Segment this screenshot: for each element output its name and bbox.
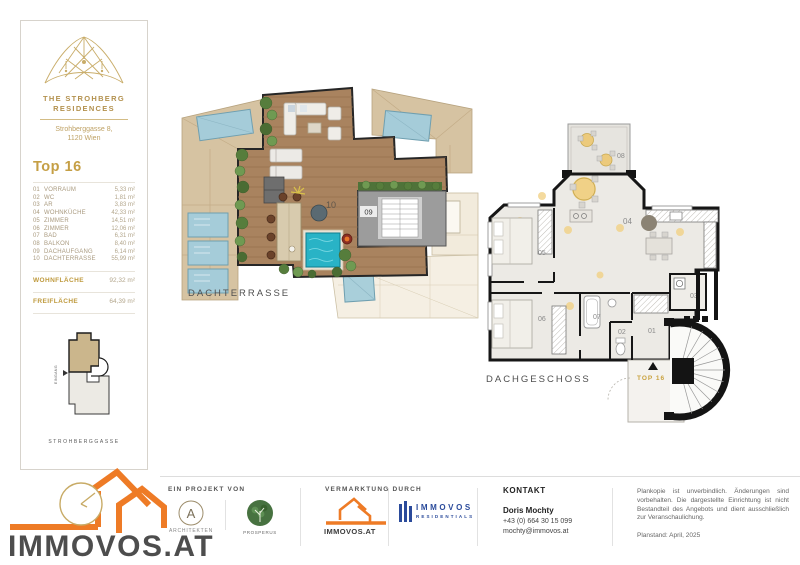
brand-divider: [40, 119, 128, 120]
fire-bowl: [342, 234, 352, 244]
disclaimer-block: Plankopie ist unverbindlich. Änderungen …: [637, 488, 789, 541]
plan-date: Planstand: April, 2025: [637, 532, 789, 541]
room-row: 10DACHTERRASSE55,99 m²: [33, 256, 135, 264]
floorplan-sheet: THE STROHBERG RESIDENCES Strohberggasse …: [0, 0, 800, 565]
room-row: 06ZIMMER12,06 m²: [33, 226, 135, 234]
room-number-09: 09: [364, 208, 372, 217]
footer-divider: [160, 476, 800, 477]
contact-label: KONTAKT: [503, 486, 572, 495]
marketing-label: VERMARKTUNG DURCH: [325, 486, 422, 493]
site-plan-map: EINGANG: [47, 326, 121, 426]
room-row: 05ZIMMER14,51 m²: [33, 218, 135, 226]
contact-email: mochty@immovos.at: [503, 528, 572, 535]
address: Strohberggasse 8, 1120 Wien: [21, 125, 147, 143]
balkon: 08: [562, 124, 636, 178]
contact-block: KONTAKT Doris Mochty +43 (0) 664 30 15 0…: [503, 486, 572, 535]
contact-name: Doris Mochty: [503, 506, 572, 515]
residentials-name: IMMOVOS: [416, 503, 473, 512]
room-row: 03AR3,83 m²: [33, 202, 135, 210]
abstellraum: 03: [670, 274, 706, 310]
room-number-08: 08: [617, 153, 625, 160]
room-row: 02WC1,81 m²: [33, 195, 135, 203]
architect-logo-icon: A: [177, 499, 205, 527]
terrace-caption: DACHTERRASSE: [188, 288, 290, 299]
site-street-label: STROHBERGGASSE: [21, 439, 147, 445]
column-table: [641, 215, 657, 231]
pool: [303, 230, 343, 270]
architect-logo-text: ARCHITEKTEN: [163, 528, 219, 534]
footer-vertical-divider: [477, 488, 478, 546]
immovos-wordmark: IMMOVOS.AT: [8, 530, 214, 564]
site-plan: EINGANG STROHBERGGASSE: [21, 326, 147, 445]
divider: [33, 271, 135, 272]
room-number-05: 05: [538, 250, 546, 257]
floor-caption: DACHGESCHOSS: [486, 374, 591, 385]
skylights-left: [188, 213, 228, 293]
residentials-logo-icon: [399, 501, 414, 525]
round-table: [311, 205, 327, 221]
footer-vertical-divider: [388, 488, 389, 546]
svg-text:A: A: [187, 506, 196, 521]
partner-logo-text: PROSPERUS: [234, 530, 286, 535]
logo-divider: [225, 500, 226, 530]
immovos-small-logo-text: IMMOVOS.AT: [324, 527, 388, 536]
total-wohnflaeche: WOHNFLÄCHE92,32 m²: [21, 276, 147, 285]
entrance-label: EINGANG: [54, 365, 58, 384]
immovos-small-logo-icon: [324, 496, 388, 528]
canopy-logo-icon: [41, 29, 127, 87]
zimmer-05: 05: [492, 210, 552, 264]
dachaufgang-stairs: 09: [358, 191, 446, 246]
disclaimer-text: Plankopie ist unverbindlich. Änderungen …: [637, 488, 789, 523]
dachterrasse-plan: 09 10 DACHTERRASSE: [180, 85, 480, 320]
strohberg-logo: [21, 29, 147, 92]
room-number-02: 02: [618, 329, 626, 336]
divider: [33, 182, 135, 183]
room-row: 01VORRAUM5,33 m²: [33, 187, 135, 195]
project-label: EIN PROJEKT VON: [168, 486, 245, 493]
divider: [33, 313, 135, 314]
dachgeschoss-plan: 08: [480, 110, 800, 425]
spiral-staircase: [664, 318, 727, 420]
room-number-07: 07: [593, 314, 601, 321]
sidebar: THE STROHBERG RESIDENCES Strohberggasse …: [20, 20, 148, 470]
unit-title: Top 16: [33, 159, 147, 175]
room-list: 01VORRAUM5,33 m² 02WC1,81 m² 03AR3,83 m²…: [21, 187, 147, 264]
total-freiflaeche: FREIFLÄCHE64,39 m²: [21, 297, 147, 306]
entrance-arrow: [63, 370, 68, 376]
room-row: 04WOHNKÜCHE42,33 m²: [33, 210, 135, 218]
wc: 02: [616, 329, 626, 355]
room-row: 07BAD6,31 m²: [33, 233, 135, 241]
contact-phone: +43 (0) 664 30 15 099: [503, 518, 572, 525]
room-number-10: 10: [326, 200, 336, 210]
residentials-subtitle: RESIDENTIALS: [416, 514, 474, 519]
brand-name: THE STROHBERG RESIDENCES: [21, 94, 147, 113]
divider: [33, 292, 135, 293]
room-row: 09DACHAUFGANG6,14 m²: [33, 249, 135, 257]
footer-vertical-divider: [612, 488, 613, 546]
zimmer-06: 06: [492, 300, 566, 354]
room-row: 08BALKON8,40 m²: [33, 241, 135, 249]
room-number-04: 04: [623, 217, 632, 226]
room-number-01: 01: [648, 328, 656, 335]
tree-logo-icon: [246, 499, 274, 527]
room-number-06: 06: [538, 316, 546, 323]
top16-label: TOP 16: [637, 375, 665, 382]
footer-vertical-divider: [300, 488, 301, 546]
